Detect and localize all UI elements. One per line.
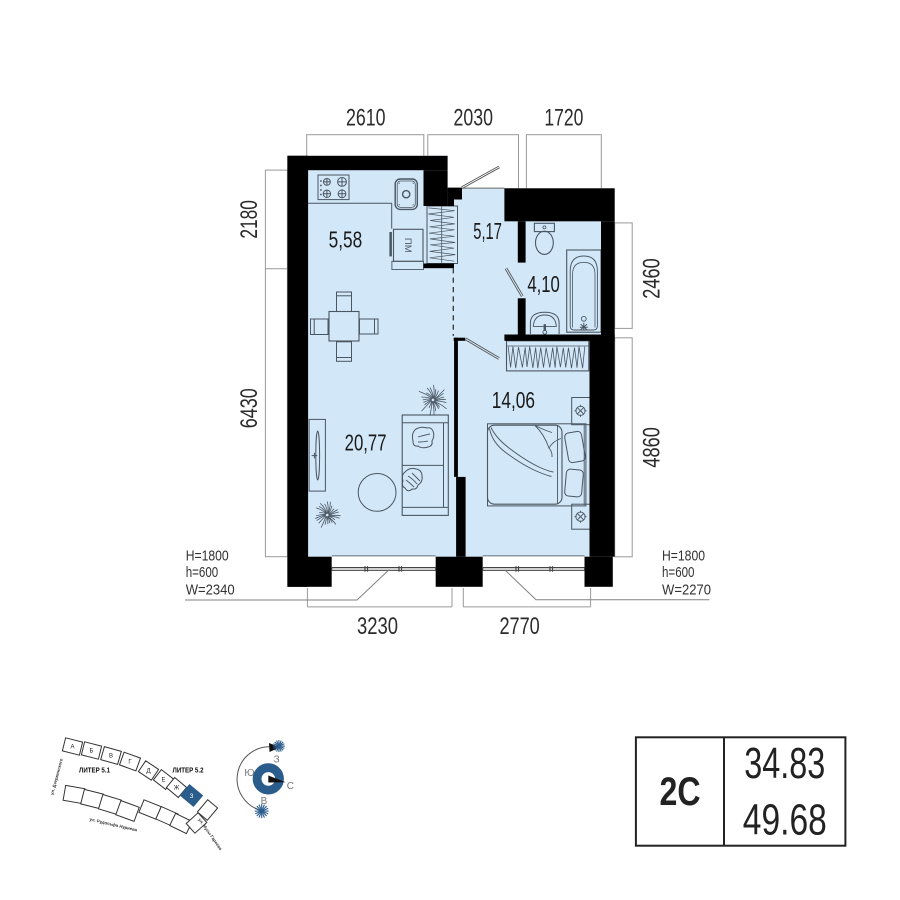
- svg-text:2610: 2610: [346, 105, 386, 132]
- svg-text:А: А: [70, 745, 74, 751]
- svg-text:W=2270: W=2270: [662, 582, 711, 599]
- svg-text:ПМ: ПМ: [402, 238, 413, 253]
- svg-text:20,77: 20,77: [345, 430, 387, 456]
- svg-text:6430: 6430: [236, 388, 263, 428]
- svg-text:2770: 2770: [499, 613, 539, 640]
- svg-text:1720: 1720: [544, 105, 583, 132]
- svg-text:14,06: 14,06: [492, 387, 535, 413]
- svg-text:3230: 3230: [357, 613, 398, 640]
- svg-text:Д: Д: [146, 769, 150, 775]
- svg-text:Б: Б: [90, 749, 94, 755]
- svg-text:ЛИТЕР 5.2: ЛИТЕР 5.2: [173, 766, 204, 775]
- svg-text:З: З: [274, 754, 280, 765]
- svg-text:34.83: 34.83: [744, 739, 825, 788]
- svg-text:ЛИТЕР 5.1: ЛИТЕР 5.1: [79, 766, 110, 775]
- svg-text:2030: 2030: [453, 105, 493, 132]
- svg-text:h=600: h=600: [662, 564, 695, 581]
- svg-text:49.68: 49.68: [743, 795, 827, 844]
- svg-text:Ж: Ж: [174, 786, 180, 792]
- svg-text:H=1800: H=1800: [186, 548, 229, 565]
- svg-text:2460: 2460: [639, 258, 666, 298]
- svg-text:5,17: 5,17: [473, 218, 502, 244]
- svg-text:Ю: Ю: [244, 768, 254, 779]
- svg-text:В: В: [109, 754, 113, 760]
- svg-text:5,58: 5,58: [329, 227, 363, 253]
- svg-text:В: В: [261, 796, 268, 807]
- svg-text:2180: 2180: [236, 200, 263, 239]
- svg-text:2С: 2С: [660, 770, 701, 814]
- svg-text:Е: Е: [161, 778, 165, 784]
- svg-text:H=1800: H=1800: [662, 548, 705, 565]
- svg-text:4860: 4860: [639, 427, 666, 467]
- svg-text:4,10: 4,10: [527, 271, 560, 297]
- svg-text:З: З: [190, 793, 194, 800]
- svg-text:W=2340: W=2340: [186, 582, 235, 599]
- svg-text:С: С: [287, 781, 294, 792]
- svg-text:h=600: h=600: [186, 564, 219, 581]
